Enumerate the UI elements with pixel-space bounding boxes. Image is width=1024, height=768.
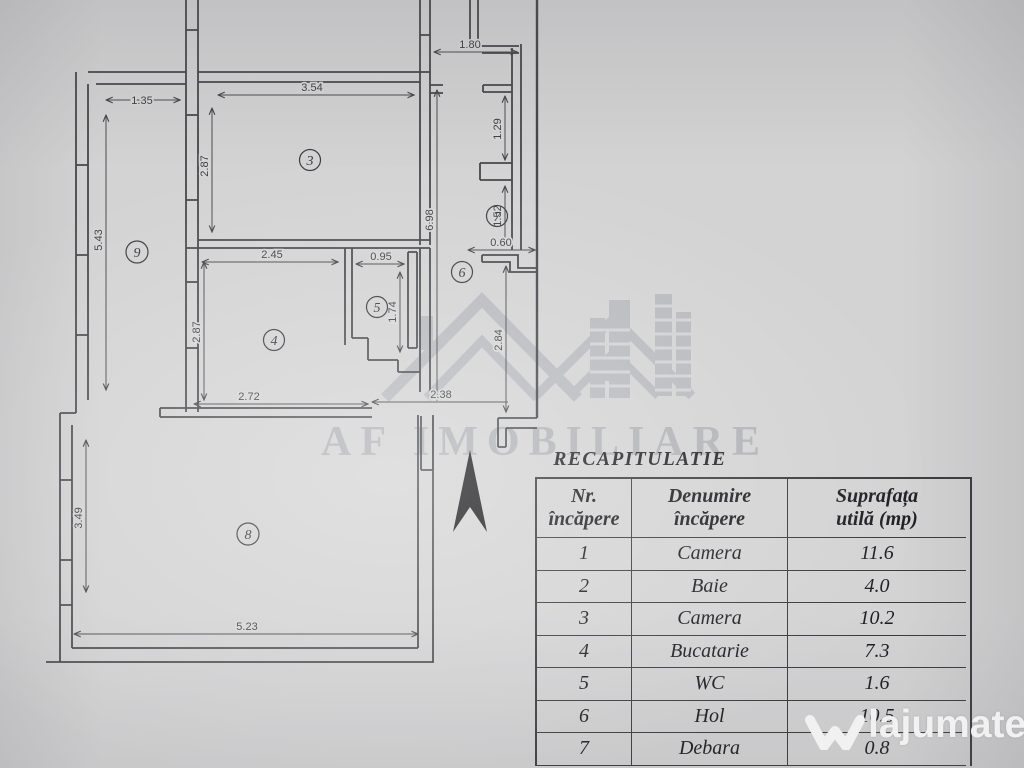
header-nr-line2: încăpere bbox=[548, 508, 619, 531]
cell-area: 10.2 bbox=[788, 603, 966, 636]
walls bbox=[46, 0, 537, 662]
dim-label: 3.54 bbox=[301, 82, 322, 94]
wall-hall-left bbox=[420, 85, 443, 470]
svg-text:7: 7 bbox=[494, 210, 502, 225]
dimension-lines bbox=[74, 52, 535, 634]
north-arrow-icon bbox=[453, 450, 487, 532]
cell-name: Hol bbox=[632, 701, 788, 734]
header-sup-line2: utilă (mp) bbox=[836, 508, 918, 531]
table-row: 3 Camera 10.2 bbox=[537, 603, 970, 636]
cell-area: 7.3 bbox=[788, 636, 966, 669]
cell-name: WC bbox=[632, 668, 788, 701]
cell-nr: 2 bbox=[537, 571, 632, 604]
room-number-6: 6 bbox=[452, 262, 473, 283]
room-numbers: 3 4 5 6 7 8 9 bbox=[126, 150, 508, 546]
header-sup-line1: Suprafața bbox=[836, 485, 918, 508]
wall-room3 bbox=[186, 0, 430, 248]
dim-label: 2.87 bbox=[199, 155, 211, 176]
dim-label: 2.38 bbox=[430, 389, 451, 401]
wall-main-vertical bbox=[186, 0, 198, 412]
lajumate-logo-icon bbox=[800, 698, 868, 750]
cell-name: Bucatarie bbox=[632, 636, 788, 669]
room-number-3: 3 bbox=[300, 150, 321, 171]
cell-nr: 7 bbox=[537, 733, 632, 766]
dim-label: 2.84 bbox=[493, 329, 505, 350]
dim-label: 1.35 bbox=[131, 95, 152, 107]
wall-entry-step bbox=[498, 418, 537, 447]
svg-text:6: 6 bbox=[459, 266, 466, 281]
site-watermark: lajumate.ro bbox=[800, 698, 1024, 750]
site-watermark-brand: lajumate bbox=[868, 705, 1024, 744]
cell-nr: 1 bbox=[537, 538, 632, 571]
svg-text:9: 9 bbox=[134, 246, 141, 261]
cell-name: Baie bbox=[632, 571, 788, 604]
room-number-5: 5 bbox=[367, 297, 388, 318]
agency-watermark-logo bbox=[385, 294, 692, 398]
cell-nr: 4 bbox=[537, 636, 632, 669]
recap-title: RECAPITULATIE bbox=[545, 449, 735, 471]
dim-label: 3.49 bbox=[73, 507, 85, 528]
cell-name: Camera bbox=[632, 603, 788, 636]
cell-name: Camera bbox=[632, 538, 788, 571]
cell-area: 1.6 bbox=[788, 668, 966, 701]
dim-label: 0.95 bbox=[370, 251, 391, 263]
wall-wc-room5 bbox=[345, 248, 420, 372]
chimney-icon bbox=[420, 316, 433, 350]
header-nr: Nr. încăpere bbox=[537, 479, 632, 538]
svg-text:3: 3 bbox=[306, 154, 314, 169]
header-nr-line1: Nr. bbox=[571, 485, 597, 508]
cell-nr: 5 bbox=[537, 668, 632, 701]
dim-label: 5.23 bbox=[236, 621, 257, 633]
dim-label: 1.80 bbox=[459, 39, 480, 51]
header-denumire: Denumire încăpere bbox=[632, 479, 788, 538]
header-den-line1: Denumire bbox=[668, 485, 751, 508]
table-row: 4 Bucatarie 7.3 bbox=[537, 636, 970, 669]
table-row: 5 WC 1.6 bbox=[537, 668, 970, 701]
dim-label: 6.98 bbox=[424, 209, 436, 230]
cell-nr: 6 bbox=[537, 701, 632, 734]
scanned-floorplan-photo: AF IMOBILIARE bbox=[0, 0, 1024, 768]
svg-text:8: 8 bbox=[245, 528, 252, 543]
dim-label: 0.60 bbox=[490, 237, 511, 249]
table-row: 2 Baie 4.0 bbox=[537, 571, 970, 604]
table-row: 1 Camera 11.6 bbox=[537, 538, 970, 571]
room-number-9: 9 bbox=[126, 241, 148, 263]
cell-area: 4.0 bbox=[788, 571, 966, 604]
cell-area: 11.6 bbox=[788, 538, 966, 571]
room-number-8: 8 bbox=[237, 523, 259, 545]
cell-name: Debara bbox=[632, 733, 788, 766]
header-den-line2: încăpere bbox=[674, 508, 745, 531]
dim-label: 2.87 bbox=[191, 321, 203, 342]
svg-text:5: 5 bbox=[374, 301, 381, 316]
cell-nr: 3 bbox=[537, 603, 632, 636]
table-header-row: Nr. încăpere Denumire încăpere Suprafața… bbox=[537, 479, 970, 538]
dim-label: 5.43 bbox=[93, 229, 105, 250]
room-number-4: 4 bbox=[264, 330, 285, 351]
dim-label: 1.74 bbox=[387, 301, 399, 322]
dim-label: 1.29 bbox=[492, 118, 504, 139]
dim-label: 2.72 bbox=[238, 391, 259, 403]
dim-label: 2.45 bbox=[261, 249, 282, 261]
svg-text:4: 4 bbox=[271, 334, 278, 349]
header-suprafata: Suprafața utilă (mp) bbox=[788, 479, 966, 538]
